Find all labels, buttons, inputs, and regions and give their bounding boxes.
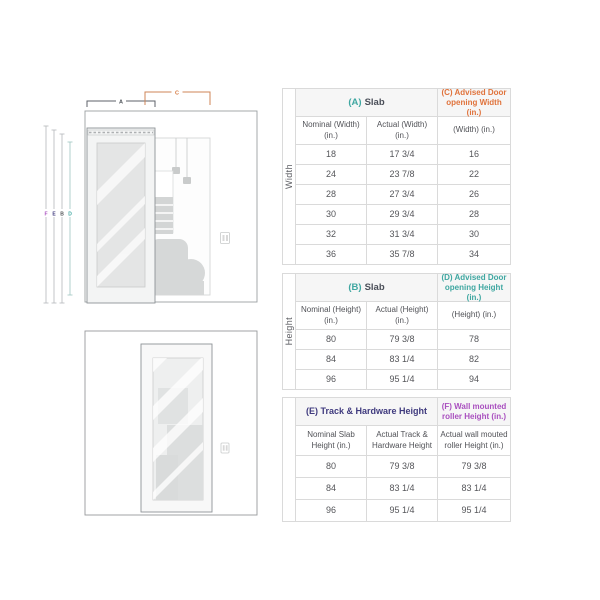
- table-cell: 83 1/4: [367, 350, 438, 370]
- table-cell: 80: [296, 330, 367, 350]
- table-cell: 32: [296, 225, 367, 245]
- track-hardware-header: (E) Track & Hardware Height: [296, 398, 438, 426]
- table-cell: 36: [296, 245, 367, 265]
- col-header: Nominal Slab Height (in.): [296, 426, 367, 456]
- width-side-label: Width: [284, 164, 294, 189]
- table-cell: 28: [438, 205, 511, 225]
- track-table-side-strip: [282, 397, 295, 522]
- table-cell: 79 3/8: [367, 330, 438, 350]
- table-cell: 83 1/4: [367, 478, 438, 500]
- col-header: (Width) (in.): [438, 117, 511, 145]
- glass-panel: [97, 143, 145, 287]
- table-cell: 96: [296, 370, 367, 390]
- line-b-label: B: [60, 212, 64, 218]
- table-cell: 95 1/4: [367, 370, 438, 390]
- table-cell: 28: [296, 185, 367, 205]
- light-switch-icon: [221, 443, 229, 453]
- track-hardware-table: (E) Track & Hardware Height (F) Wall mou…: [282, 397, 511, 522]
- table-cell: 84: [296, 350, 367, 370]
- slab-a-header: (A) Slab: [296, 89, 438, 117]
- table-cell: 95 1/4: [367, 500, 438, 522]
- table-cell: 35 7/8: [367, 245, 438, 265]
- height-line-labels: F E B D: [43, 209, 74, 218]
- height-side-label: Height: [284, 317, 294, 345]
- table-cell: 29 3/4: [367, 205, 438, 225]
- sofa-base: [150, 281, 204, 296]
- door-spec-sheet: A C F E B D: [0, 0, 600, 600]
- table-cell: 83 1/4: [438, 478, 511, 500]
- col-header: Nominal (Width) (in.): [296, 117, 367, 145]
- light-switch-icon: [221, 233, 230, 244]
- height-table-side-strip: Height: [282, 273, 295, 390]
- slab-b-prefix: (B): [348, 282, 361, 293]
- table-cell: 23 7/8: [367, 165, 438, 185]
- table-cell: 26: [438, 185, 511, 205]
- table-cell: 95 1/4: [438, 500, 511, 522]
- table-cell: 27 3/4: [367, 185, 438, 205]
- table-cell: 79 3/8: [438, 456, 511, 478]
- table-cell: 94: [438, 370, 511, 390]
- col-header: Nominal (Height) (in.): [296, 302, 367, 330]
- col-header: (Height) (in.): [438, 302, 511, 330]
- table-cell: 18: [296, 145, 367, 165]
- slab-a-title: Slab: [365, 97, 385, 108]
- table-cell: 80: [296, 456, 367, 478]
- advised-height-header: (D) Advised Door opening Height (in.): [438, 274, 511, 302]
- table-cell: 84: [296, 478, 367, 500]
- table-cell: 82: [438, 350, 511, 370]
- open-door-diagram: A C F E B D: [43, 89, 258, 304]
- table-cell: 78: [438, 330, 511, 350]
- table-cell: 22: [438, 165, 511, 185]
- table-cell: 16: [438, 145, 511, 165]
- bracket-a-label: A: [119, 100, 123, 106]
- bracket-c-label: C: [175, 91, 179, 97]
- col-header: Actual (Width) (in.): [367, 117, 438, 145]
- table-cell: 31 3/4: [367, 225, 438, 245]
- closed-door-diagram: [85, 331, 257, 515]
- col-header: Actual Track & Hardware Height: [367, 426, 438, 456]
- line-d-label: D: [68, 212, 72, 218]
- advised-width-header: (C) Advised Door opening Width (in.): [438, 89, 511, 117]
- table-cell: 17 3/4: [367, 145, 438, 165]
- table-cell: 79 3/8: [367, 456, 438, 478]
- width-table-side-strip: Width: [282, 88, 295, 265]
- wall-roller-header: (F) Wall mounted roller Height (in.): [438, 398, 511, 426]
- slab-b-title: Slab: [365, 282, 385, 293]
- line-f-label: F: [44, 212, 47, 218]
- table-cell: 96: [296, 500, 367, 522]
- table-cell: 34: [438, 245, 511, 265]
- width-table: Width (A) Slab (C) Advised Door opening …: [282, 88, 511, 265]
- height-table: Height (B) Slab (D) Advised Door opening…: [282, 273, 511, 390]
- table-cell: 30: [438, 225, 511, 245]
- table-cell: 24: [296, 165, 367, 185]
- slab-a-prefix: (A): [348, 97, 361, 108]
- slab-b-header: (B) Slab: [296, 274, 438, 302]
- col-header: Actual wall mouted roller Height (in.): [438, 426, 511, 456]
- table-cell: 30: [296, 205, 367, 225]
- col-header: Actual (Height) (in.): [367, 302, 438, 330]
- pendant-lamp-icon: [183, 177, 191, 184]
